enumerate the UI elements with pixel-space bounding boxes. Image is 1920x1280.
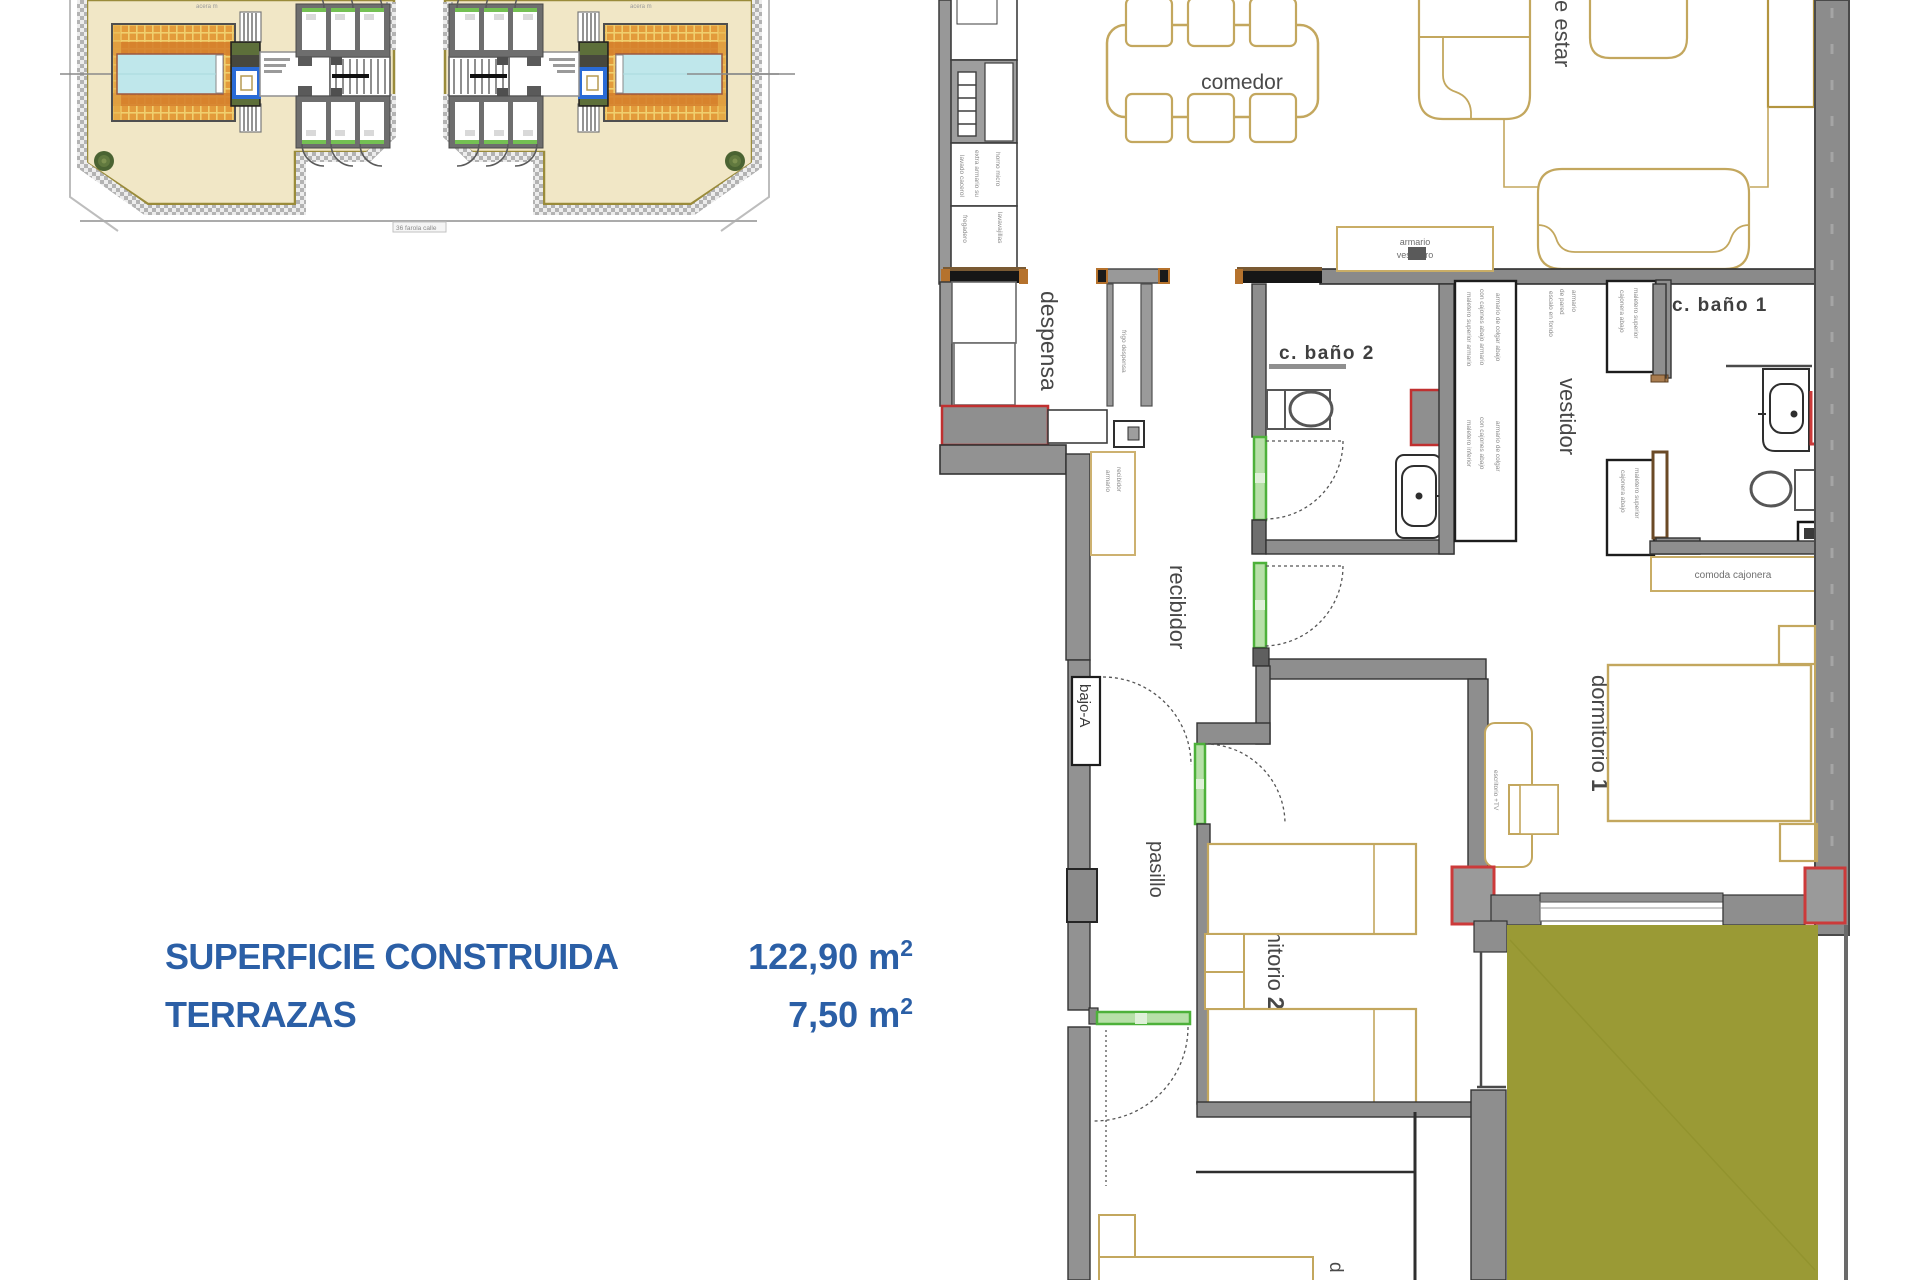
svg-text:vestidor: vestidor: [1555, 378, 1580, 455]
svg-text:escalo en fondo: escalo en fondo: [1547, 291, 1554, 337]
svg-text:recibidor: recibidor: [1115, 467, 1122, 493]
svg-text:armario: armario: [1400, 237, 1431, 247]
svg-text:acera m: acera m: [630, 4, 652, 10]
svg-text:comoda cajonera: comoda cajonera: [1695, 570, 1772, 581]
svg-text:7,50 m2: 7,50 m2: [788, 993, 913, 1035]
svg-text:bajo-A: bajo-A: [1076, 684, 1093, 727]
svg-text:con cajones abajo: con cajones abajo: [1478, 417, 1485, 470]
svg-text:maletero inferior: maletero inferior: [1465, 420, 1472, 468]
svg-text:maletero superior armario: maletero superior armario: [1465, 292, 1472, 367]
svg-text:armario: armario: [1104, 470, 1111, 492]
svg-text:cajonera abajo: cajonera abajo: [1618, 290, 1625, 333]
svg-text:lavado cacerol: lavado cacerol: [958, 155, 965, 197]
svg-text:lavavajillas: lavavajillas: [996, 212, 1003, 244]
svg-text:SUPERFICIE CONSTRUIDA: SUPERFICIE CONSTRUIDA: [165, 936, 619, 977]
svg-text:d: d: [1325, 1262, 1346, 1273]
svg-text:cajonera abajo: cajonera abajo: [1619, 470, 1626, 513]
svg-text:122,90 m2: 122,90 m2: [748, 935, 913, 977]
svg-text:maletero superior: maletero superior: [1633, 468, 1640, 519]
svg-text:armario: armario: [1570, 290, 1577, 312]
svg-text:con cajones abajo armario: con cajones abajo armario: [1478, 289, 1485, 366]
svg-text:e estar: e estar: [1550, 0, 1575, 67]
svg-text:c. baño 1: c. baño 1: [1672, 295, 1768, 316]
svg-text:pasillo: pasillo: [1145, 841, 1167, 898]
svg-text:TERRAZAS: TERRAZAS: [165, 994, 356, 1035]
svg-text:frigo despensa: frigo despensa: [1120, 330, 1127, 373]
svg-text:comedor: comedor: [1201, 71, 1283, 94]
svg-text:escritorio +TV: escritorio +TV: [1492, 770, 1499, 811]
svg-text:despensa: despensa: [1036, 291, 1062, 391]
svg-text:extra armario su: extra armario su: [973, 150, 980, 197]
svg-text:horno micro: horno micro: [994, 152, 1001, 187]
svg-text:recibidor: recibidor: [1165, 565, 1190, 649]
svg-text:maletero superior: maletero superior: [1632, 288, 1639, 339]
svg-text:acera m: acera m: [196, 4, 218, 10]
svg-text:armario de colgar: armario de colgar: [1494, 421, 1501, 472]
svg-text:de pared: de pared: [1558, 289, 1565, 315]
svg-text:36 farola calle: 36 farola calle: [396, 225, 437, 232]
svg-text:fregadero: fregadero: [961, 215, 968, 243]
svg-text:armario de colgar abajo: armario de colgar abajo: [1494, 293, 1501, 362]
svg-text:c. baño 2: c. baño 2: [1279, 343, 1375, 364]
